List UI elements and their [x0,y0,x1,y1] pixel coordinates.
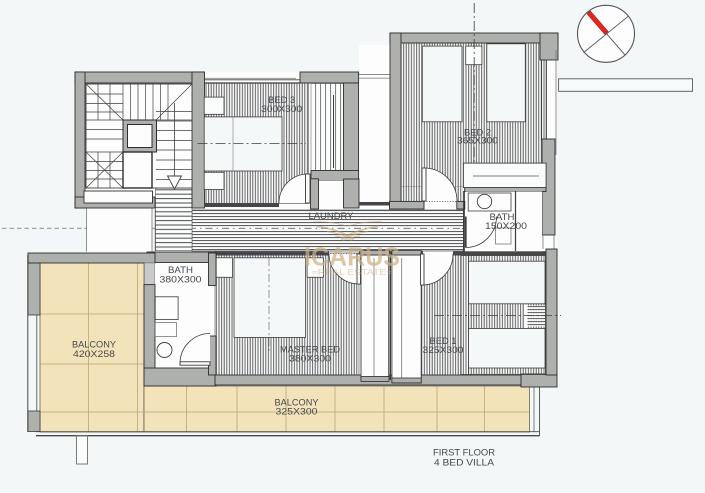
svg-text:≈REAL ESTATE≈: ≈REAL ESTATE≈ [312,267,392,277]
svg-text:420X258: 420X258 [73,349,115,359]
svg-text:LAUNDRY: LAUNDRY [309,211,354,221]
svg-text:300X300: 300X300 [261,104,302,114]
svg-text:150X200: 150X200 [485,221,527,231]
svg-text:4 BED VILLA: 4 BED VILLA [434,458,495,469]
svg-text:BATH: BATH [168,265,193,275]
svg-text:365X300: 365X300 [457,136,498,146]
svg-text:325X300: 325X300 [276,407,318,417]
svg-text:380X300: 380X300 [289,354,331,364]
svg-text:325X300: 325X300 [423,345,464,355]
svg-text:BALCONY: BALCONY [72,340,116,350]
svg-text:380X300: 380X300 [160,275,202,285]
